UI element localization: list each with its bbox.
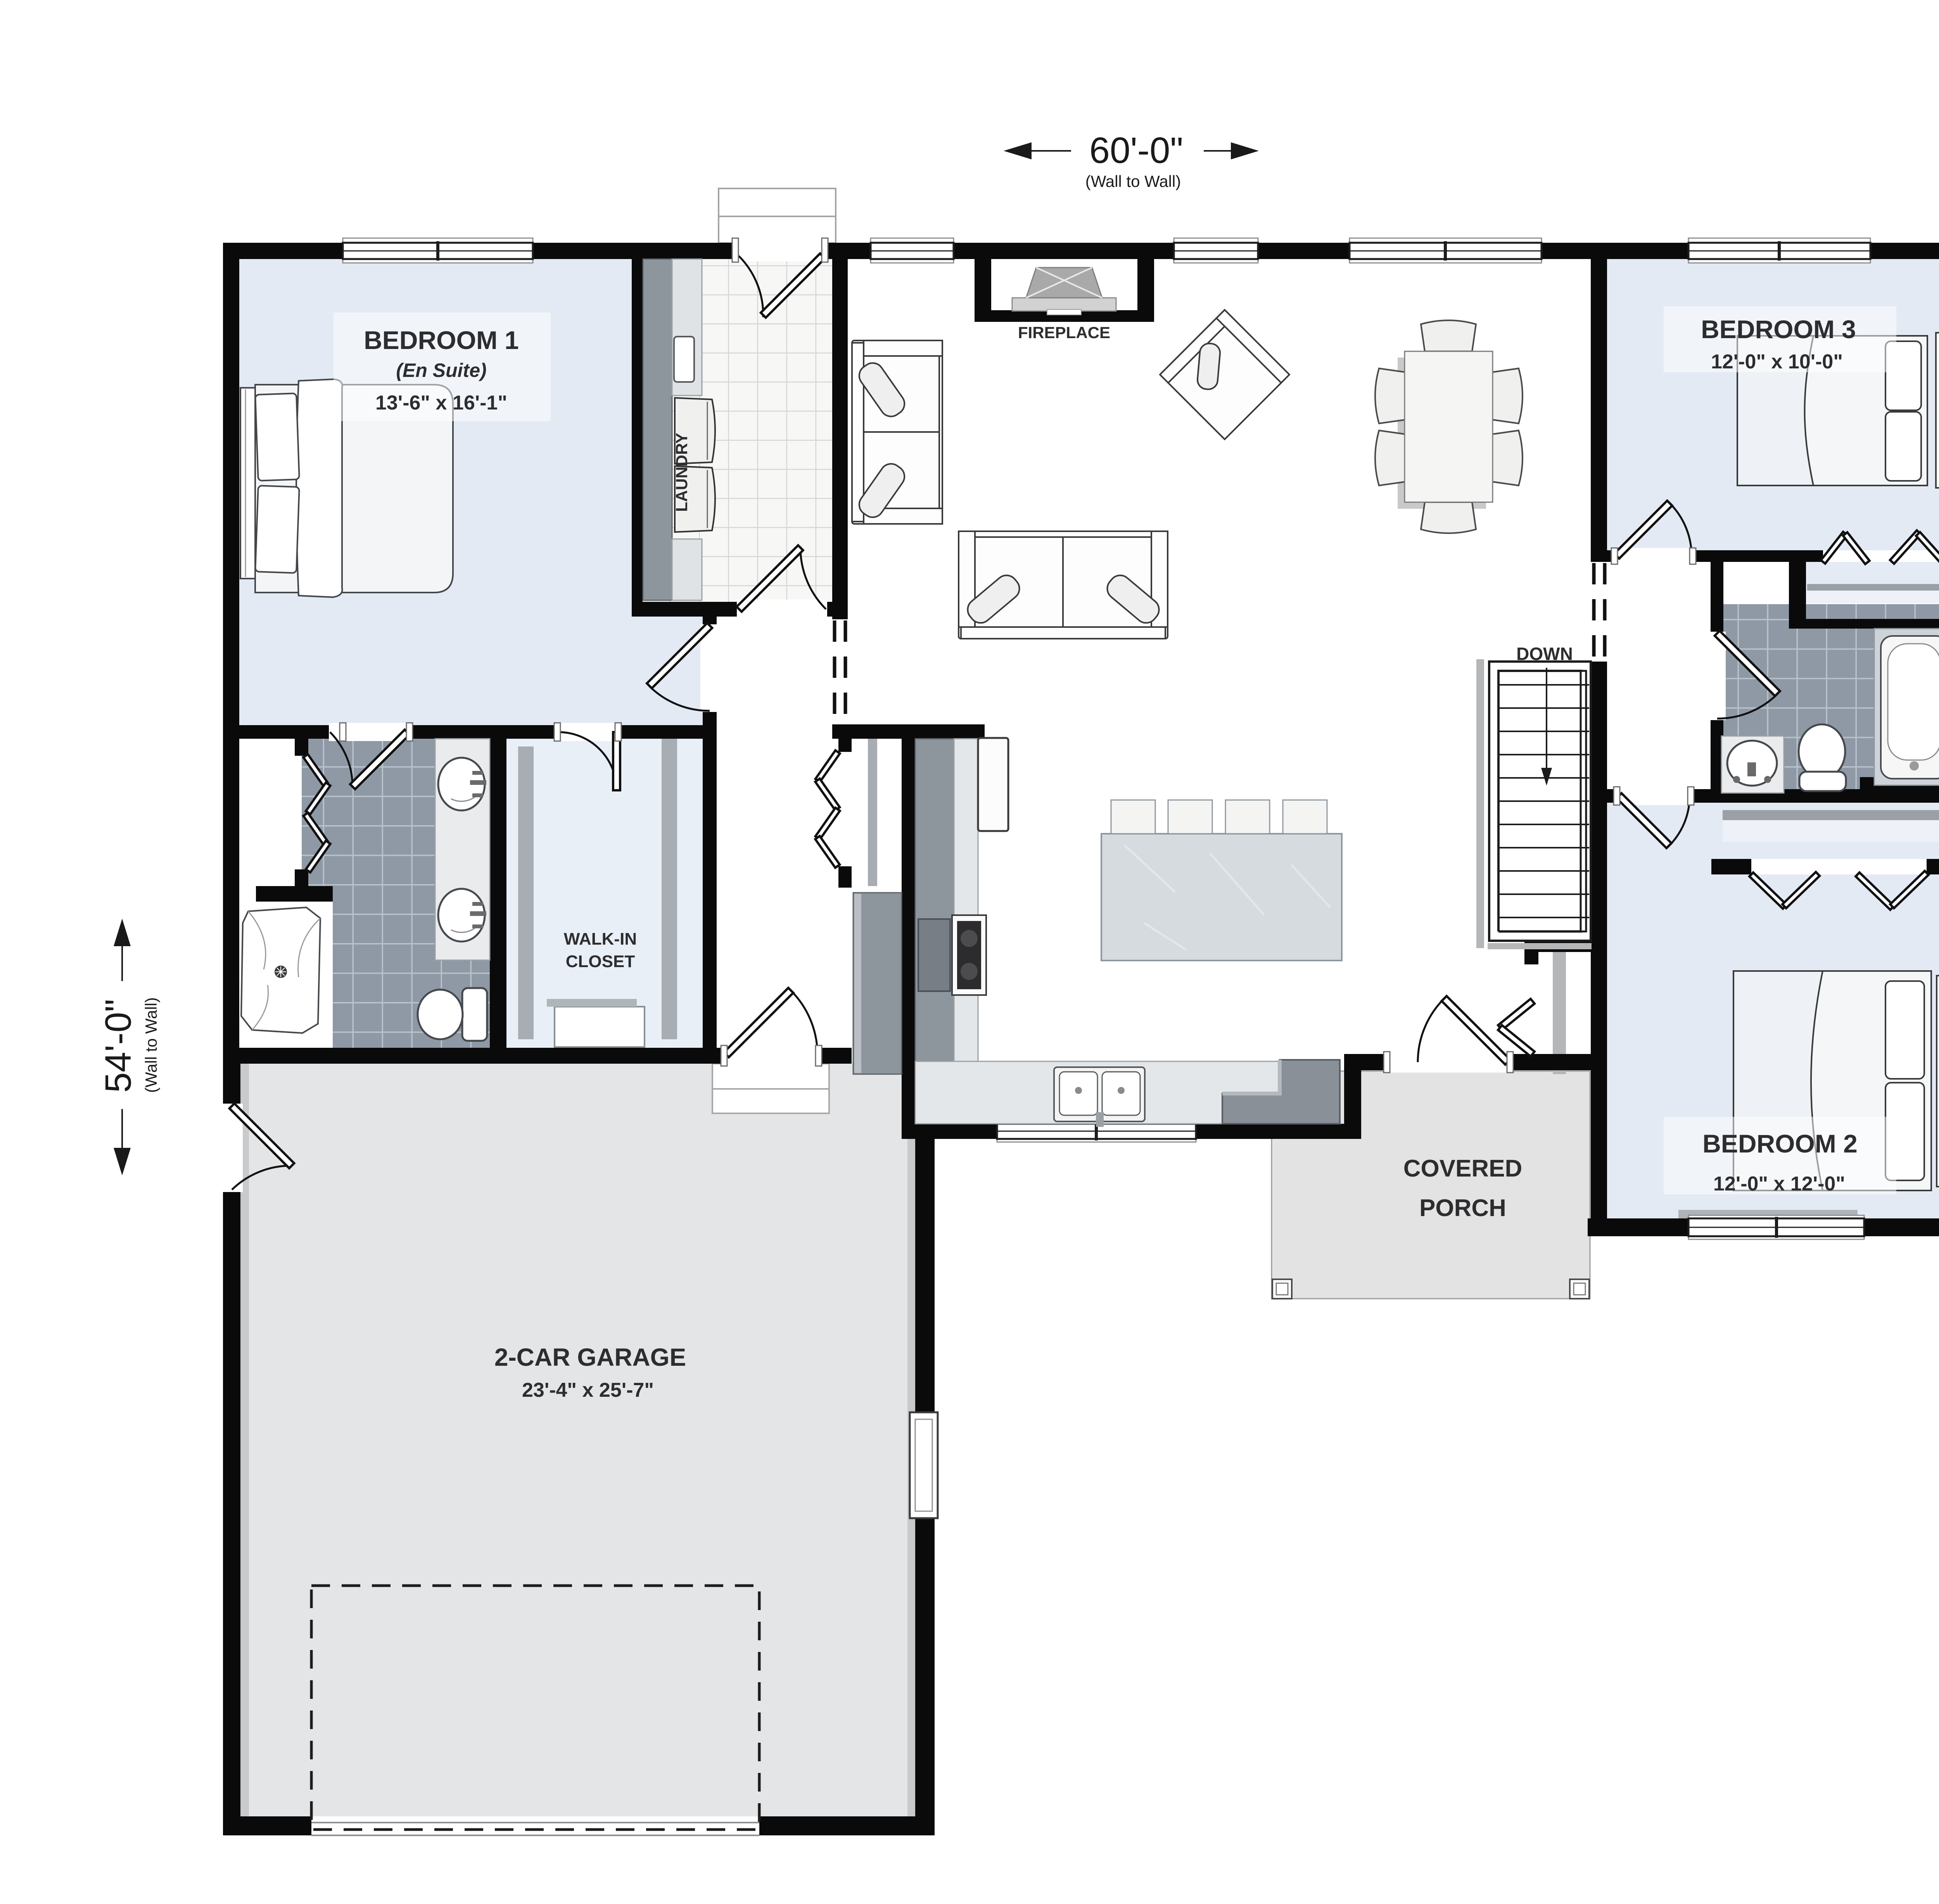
svg-text:BEDROOM 2: BEDROOM 2 [1702,1129,1858,1158]
svg-text:LAUNDRY: LAUNDRY [672,433,691,512]
svg-text:PORCH: PORCH [1419,1195,1506,1222]
svg-text:WALK-IN: WALK-IN [564,930,637,949]
svg-text:12'-0" x 12'-0": 12'-0" x 12'-0" [1713,1173,1845,1195]
svg-text:2-CAR GARAGE: 2-CAR GARAGE [494,1343,686,1371]
svg-text:FIREPLACE: FIREPLACE [1018,323,1110,342]
svg-text:(En Suite): (En Suite) [396,359,486,381]
svg-text:(Wall to Wall): (Wall to Wall) [142,997,160,1093]
svg-text:BEDROOM 3: BEDROOM 3 [1701,315,1856,344]
svg-text:COVERED: COVERED [1403,1155,1523,1182]
svg-text:54'-0": 54'-0" [98,999,139,1093]
svg-text:13'-6" x 16'-1": 13'-6" x 16'-1" [375,392,507,414]
svg-text:(Wall to Wall): (Wall to Wall) [1085,172,1181,190]
svg-text:CLOSET: CLOSET [566,952,635,971]
svg-text:12'-0" x 10'-0": 12'-0" x 10'-0" [1711,351,1843,373]
svg-text:DOWN: DOWN [1516,644,1573,664]
svg-text:BEDROOM 1: BEDROOM 1 [364,326,519,354]
svg-text:23'-4" x 25'-7": 23'-4" x 25'-7" [522,1379,654,1401]
svg-text:60'-0": 60'-0" [1089,130,1183,171]
